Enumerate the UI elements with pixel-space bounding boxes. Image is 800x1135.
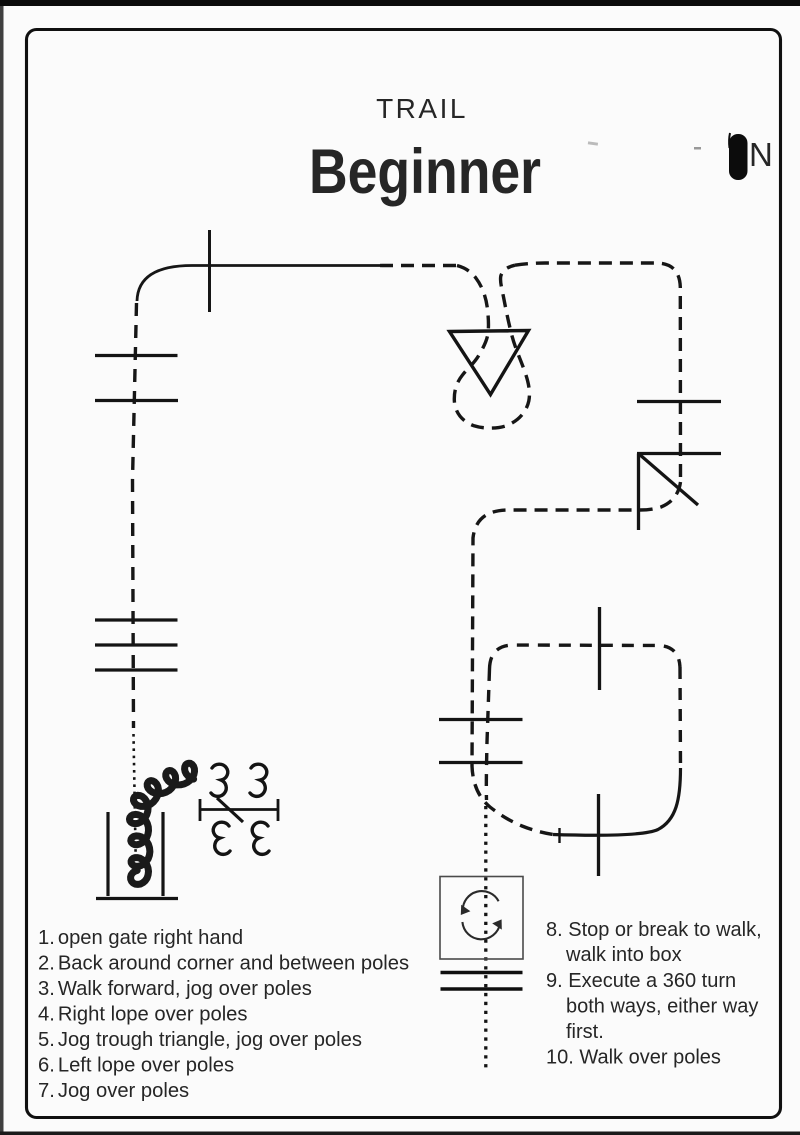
svg-text:walk into box: walk into box [565, 944, 682, 966]
svg-text:3.Walk forward, jog over poles: 3.Walk forward, jog over poles [38, 978, 312, 1000]
svg-text:both ways, either way: both ways, either way [566, 996, 758, 1018]
svg-text:2.Back around corner and betwe: 2.Back around corner and between poles [38, 953, 409, 975]
svg-text:1.open gate right hand: 1.open gate right hand [38, 927, 243, 949]
svg-text:10. Walk over poles: 10. Walk over poles [546, 1047, 721, 1069]
svg-text:9. Execute a 360 turn: 9. Execute a 360 turn [546, 970, 736, 992]
svg-text:N: N [749, 136, 773, 173]
svg-text:4.Right lope over poles: 4.Right lope over poles [38, 1004, 248, 1026]
svg-text:Beginner: Beginner [309, 137, 541, 207]
svg-text:6.Left lope over poles: 6.Left lope over poles [38, 1055, 234, 1077]
svg-text:7.Jog over poles: 7.Jog over poles [38, 1080, 189, 1102]
svg-text:5.Jog trough triangle, jog ove: 5.Jog trough triangle, jog over poles [38, 1029, 362, 1051]
svg-text:8. Stop or break to walk,: 8. Stop or break to walk, [546, 919, 762, 941]
svg-text:first.: first. [566, 1021, 604, 1043]
svg-text:TRAIL: TRAIL [376, 93, 468, 124]
